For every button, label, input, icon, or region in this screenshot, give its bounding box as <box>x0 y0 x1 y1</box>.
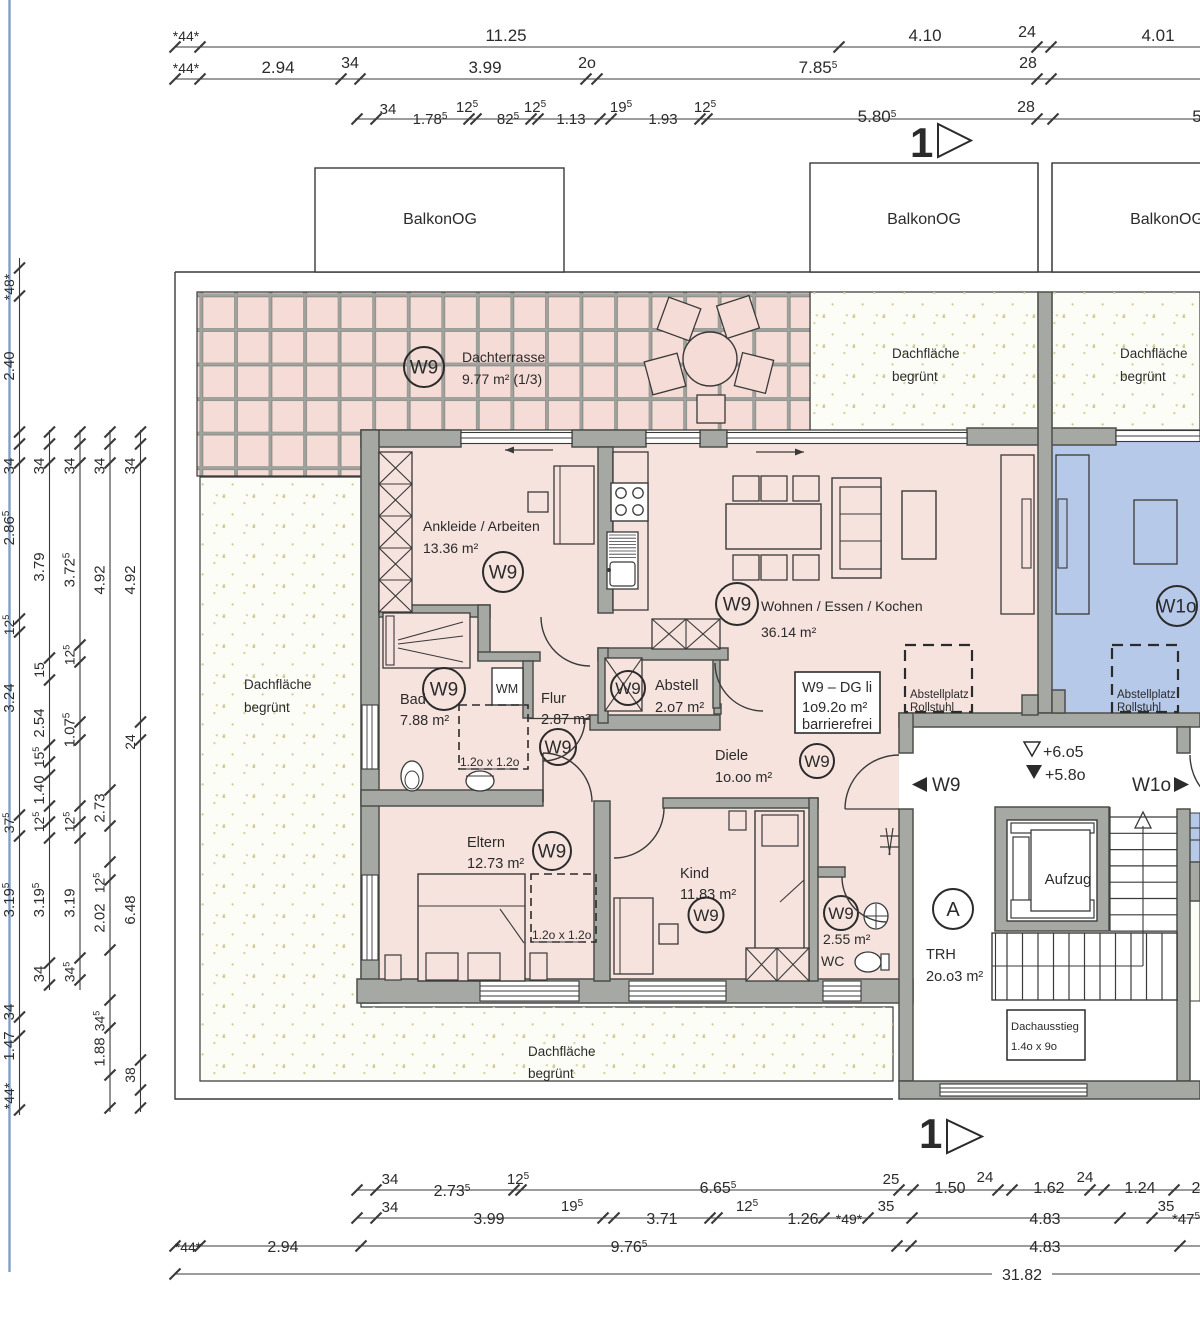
svg-text:3.24: 3.24 <box>1 683 18 712</box>
svg-text:barrierefrei: barrierefrei <box>802 717 872 733</box>
svg-text:Dachterrasse: Dachterrasse <box>462 349 545 365</box>
svg-text:7.88 m²: 7.88 m² <box>400 713 449 729</box>
svg-text:31.82: 31.82 <box>1002 1267 1042 1284</box>
svg-text:4.92: 4.92 <box>122 565 139 594</box>
svg-text:34: 34 <box>382 1171 399 1188</box>
svg-text:Abstell: Abstell <box>655 678 699 694</box>
svg-text:*44*: *44* <box>1 1082 17 1109</box>
svg-text:+6.o5: +6.o5 <box>1043 744 1084 761</box>
svg-text:*44*: *44* <box>173 60 200 76</box>
svg-text:W9: W9 <box>410 358 439 379</box>
svg-text:2.o7 m²: 2.o7 m² <box>655 700 704 716</box>
svg-text:4.83: 4.83 <box>1029 1239 1060 1256</box>
svg-text:A: A <box>946 899 960 921</box>
svg-text:24: 24 <box>1018 24 1036 41</box>
svg-text:1.2o x 1.2o: 1.2o x 1.2o <box>532 928 592 942</box>
svg-text:1.24: 1.24 <box>1124 1180 1155 1197</box>
svg-text:W9: W9 <box>828 904 854 923</box>
svg-text:*48*: *48* <box>1 273 17 300</box>
svg-text:2.55 m²: 2.55 m² <box>823 931 871 947</box>
svg-text:1.2o x 1.2o: 1.2o x 1.2o <box>460 755 520 769</box>
svg-text:9.77 m² (1/3): 9.77 m² (1/3) <box>462 371 542 387</box>
svg-text:W9: W9 <box>430 680 459 701</box>
svg-text:34: 34 <box>92 458 109 475</box>
svg-text:Abstellplatz: Abstellplatz <box>910 689 969 701</box>
svg-text:2: 2 <box>1192 1180 1200 1197</box>
svg-text:*44*: *44* <box>175 1239 202 1255</box>
svg-text:2.94: 2.94 <box>267 1239 298 1256</box>
svg-text:1o9.2o m²: 1o9.2o m² <box>802 700 867 716</box>
svg-text:1.47: 1.47 <box>1 1031 18 1060</box>
svg-text:2.54: 2.54 <box>31 708 48 737</box>
svg-text:begrünt: begrünt <box>1120 369 1166 384</box>
svg-text:3.99: 3.99 <box>468 58 501 77</box>
svg-text:34: 34 <box>1 458 18 475</box>
svg-text:2o.o3 m²: 2o.o3 m² <box>926 969 983 985</box>
svg-text:W1o: W1o <box>1132 775 1171 796</box>
svg-text:W9: W9 <box>693 906 719 925</box>
svg-text:2.87 m²: 2.87 m² <box>541 712 590 728</box>
svg-text:Abstellplatz: Abstellplatz <box>1117 689 1176 701</box>
svg-text:Flur: Flur <box>541 691 566 707</box>
svg-text:1.26: 1.26 <box>787 1211 818 1228</box>
svg-text:4.92: 4.92 <box>92 565 109 594</box>
svg-text:1.88: 1.88 <box>92 1037 109 1066</box>
svg-text:34: 34 <box>341 55 359 72</box>
svg-text:TRH: TRH <box>926 947 956 963</box>
svg-text:Kind: Kind <box>680 866 709 882</box>
svg-text:35: 35 <box>878 1198 895 1215</box>
svg-text:W9: W9 <box>723 595 752 616</box>
svg-text:Ankleide / Arbeiten: Ankleide / Arbeiten <box>423 518 540 534</box>
svg-text:W9: W9 <box>489 563 518 584</box>
svg-text:4.83: 4.83 <box>1029 1211 1060 1228</box>
svg-text:2o: 2o <box>578 55 596 72</box>
svg-text:W9: W9 <box>615 679 641 698</box>
svg-text:2.40: 2.40 <box>1 351 18 380</box>
svg-text:begrünt: begrünt <box>528 1066 574 1081</box>
svg-text:Dachfläche: Dachfläche <box>244 677 312 692</box>
svg-text:Dachfläche: Dachfläche <box>892 346 960 361</box>
svg-text:11.25: 11.25 <box>485 26 526 45</box>
svg-text:*49*: *49* <box>836 1211 863 1227</box>
svg-text:5: 5 <box>1192 107 1200 126</box>
svg-text:Rollstuhl: Rollstuhl <box>1117 702 1161 714</box>
svg-text:WM: WM <box>496 682 518 696</box>
svg-text:24: 24 <box>122 734 138 750</box>
svg-text:1.40: 1.40 <box>31 775 48 804</box>
svg-text:24: 24 <box>1077 1169 1094 1186</box>
svg-text:3.71: 3.71 <box>646 1211 677 1228</box>
svg-text:4.10: 4.10 <box>908 26 941 45</box>
svg-text:Dachfläche: Dachfläche <box>528 1044 596 1059</box>
svg-text:1o.oo m²: 1o.oo m² <box>715 770 772 786</box>
svg-text:38: 38 <box>122 1067 138 1083</box>
svg-text:2.02: 2.02 <box>92 903 109 932</box>
svg-text:Bad: Bad <box>400 692 426 708</box>
svg-text:24: 24 <box>977 1169 994 1186</box>
svg-text:1: 1 <box>910 119 933 166</box>
svg-text:Diele: Diele <box>715 748 748 764</box>
svg-text:3.79: 3.79 <box>31 552 48 581</box>
svg-text:34: 34 <box>31 458 48 475</box>
svg-text:1.4o x 9o: 1.4o x 9o <box>1011 1041 1057 1053</box>
svg-text:Wohnen / Essen / Kochen: Wohnen / Essen / Kochen <box>761 598 923 614</box>
svg-text:W9 – DG li: W9 – DG li <box>802 680 872 696</box>
svg-text:34: 34 <box>382 1199 399 1216</box>
svg-text:+5.8o: +5.8o <box>1045 767 1086 784</box>
svg-text:34: 34 <box>122 458 139 475</box>
svg-text:WC: WC <box>821 953 844 969</box>
svg-text:W9: W9 <box>804 752 830 771</box>
svg-text:25: 25 <box>883 1171 900 1188</box>
svg-text:15: 15 <box>31 662 47 678</box>
svg-text:11.83 m²: 11.83 m² <box>680 887 736 903</box>
svg-text:begrünt: begrünt <box>892 369 938 384</box>
svg-text:begrünt: begrünt <box>244 700 290 715</box>
svg-text:BalkonOG: BalkonOG <box>403 211 477 228</box>
svg-text:12.73 m²: 12.73 m² <box>467 856 524 872</box>
svg-text:1: 1 <box>919 1110 942 1157</box>
svg-text:6.48: 6.48 <box>122 895 139 924</box>
svg-text:34: 34 <box>380 101 397 118</box>
svg-text:BalkonOG: BalkonOG <box>1130 211 1200 228</box>
svg-text:1.50: 1.50 <box>934 1180 965 1197</box>
svg-text:Aufzug: Aufzug <box>1045 871 1092 888</box>
svg-text:Rollstuhl: Rollstuhl <box>910 702 954 714</box>
svg-text:W1o: W1o <box>1157 597 1196 618</box>
svg-text:W9: W9 <box>545 737 572 757</box>
svg-text:1.93: 1.93 <box>648 111 677 128</box>
svg-text:Eltern: Eltern <box>467 835 505 851</box>
svg-text:*44*: *44* <box>173 28 200 44</box>
svg-text:34: 34 <box>31 966 48 983</box>
svg-text:28: 28 <box>1019 55 1037 72</box>
svg-text:Dachausstieg: Dachausstieg <box>1011 1021 1079 1033</box>
svg-text:3.99: 3.99 <box>473 1211 504 1228</box>
svg-text:BalkonOG: BalkonOG <box>887 211 961 228</box>
svg-text:4.01: 4.01 <box>1141 26 1174 45</box>
svg-text:34: 34 <box>62 458 79 475</box>
svg-text:13.36 m²: 13.36 m² <box>423 540 479 556</box>
svg-text:3.19: 3.19 <box>62 888 79 917</box>
svg-text:1.13: 1.13 <box>556 111 585 128</box>
svg-text:1.62: 1.62 <box>1033 1180 1064 1197</box>
svg-text:28: 28 <box>1017 99 1035 116</box>
svg-text:2.94: 2.94 <box>261 58 294 77</box>
svg-text:34: 34 <box>1 1004 18 1021</box>
svg-text:36.14 m²: 36.14 m² <box>761 624 817 640</box>
svg-text:2.73: 2.73 <box>92 793 109 822</box>
svg-text:W9: W9 <box>538 842 567 863</box>
svg-text:Dachfläche: Dachfläche <box>1120 346 1188 361</box>
svg-text:W9: W9 <box>932 775 961 796</box>
